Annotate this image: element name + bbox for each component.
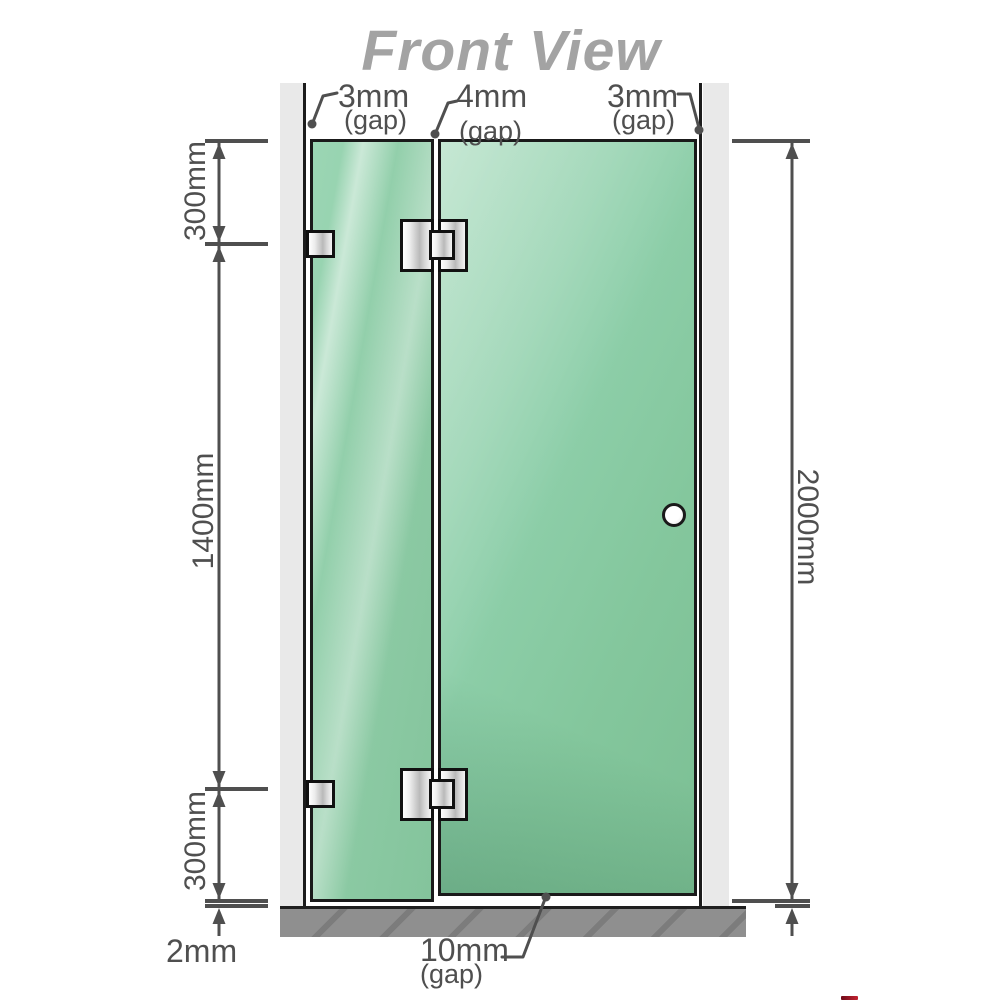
leader-gap-top-right (678, 94, 699, 128)
leader-dot-top-right (695, 126, 704, 135)
label-gap-top-left-note: (gap) (344, 107, 407, 134)
label-dim-left-top: 300mm (181, 141, 211, 241)
label-floor-gap: 2mm (166, 935, 237, 967)
leader-gap-top-left (313, 93, 337, 122)
label-gap-top-middle-note: (gap) (459, 118, 522, 145)
front-view-diagram: Front View (0, 0, 1000, 1000)
logo-fragment (841, 996, 858, 1000)
leader-dot-top-left (308, 120, 317, 129)
leader-dot-top-middle (431, 130, 440, 139)
leader-lines (308, 93, 704, 957)
label-gap-top-middle-value: 4mm (456, 80, 527, 112)
leader-gap-top-middle (436, 101, 457, 132)
dimension-lines (0, 0, 1000, 1000)
label-gap-top-right-note: (gap) (612, 107, 675, 134)
label-dim-left-middle: 1400mm (189, 453, 219, 570)
label-dim-right-height: 2000mm (792, 469, 822, 586)
label-dim-left-bottom: 300mm (181, 791, 211, 891)
label-gap-bottom-note: (gap) (420, 961, 483, 988)
leader-dot-bottom (542, 893, 551, 902)
